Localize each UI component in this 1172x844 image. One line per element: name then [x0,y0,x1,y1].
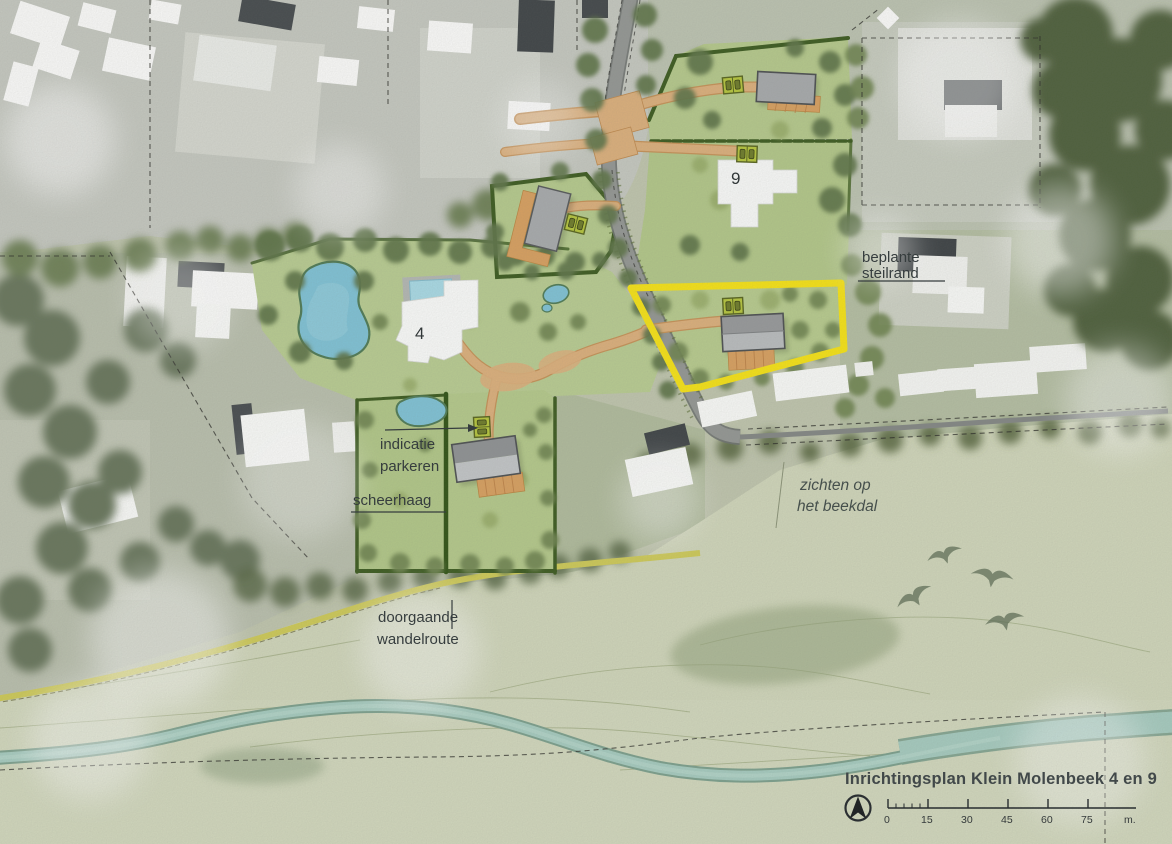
photo-grain-overlay [0,0,1172,844]
site-plan-map: beplante steilrand indicatie parkeren sc… [0,0,1172,844]
site-plan-svg: beplante steilrand indicatie parkeren sc… [0,0,1172,844]
